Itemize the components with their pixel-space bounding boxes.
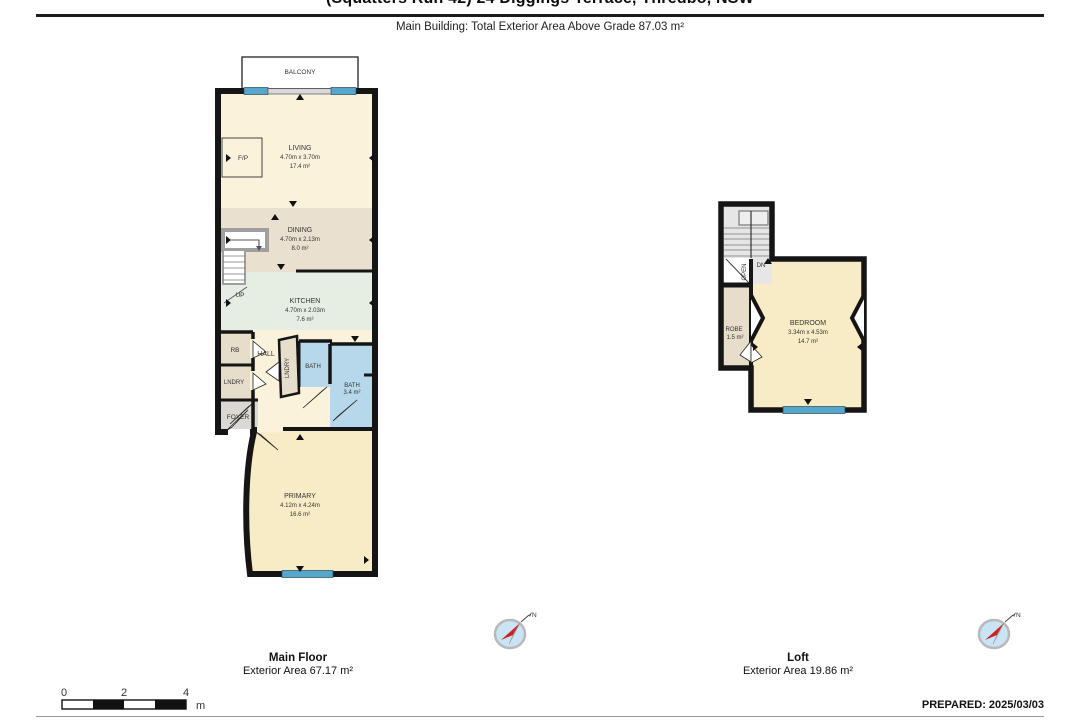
dn-label: DN (757, 263, 766, 269)
header-divider (36, 14, 1044, 17)
dining-label: DINING (288, 227, 313, 234)
primary-label: PRIMARY (284, 493, 316, 500)
robe-label: ROBE (725, 327, 742, 333)
open-label: OPEN (742, 263, 748, 280)
scale-tick-2: 2 (121, 687, 127, 699)
bedroom-label: BEDROOM (790, 320, 826, 327)
scale-unit: m (196, 700, 205, 712)
compass-main: N (488, 608, 538, 653)
balcony-slider-door (268, 89, 331, 95)
living-window-left (244, 88, 268, 95)
kitchen-label: KITCHEN (290, 298, 321, 305)
bath-label: BATH (344, 383, 360, 389)
up-label: UP (235, 292, 244, 299)
living-dims: 4.70m x 3.70m (280, 155, 320, 161)
page-title: (Squatters Run 42) 24 Diggings Terrace, … (0, 0, 1080, 8)
kitchen-dims: 4.70m x 2.03m (285, 308, 325, 314)
scale-tick-0: 0 (61, 687, 67, 699)
main-floor-caption: Main Floor Exterior Area 67.17 m² (158, 652, 438, 678)
bedroom-area: 14.7 m² (798, 339, 818, 345)
prepared-date: PREPARED: 2025/03/03 (922, 699, 1044, 711)
bath-area: 3.4 m² (343, 390, 360, 396)
loft-area: Exterior Area 19.86 m² (743, 665, 853, 677)
primary-area: 16.6 m² (290, 512, 310, 518)
primary-bedroom (245, 430, 375, 574)
loft-plan: BEDROOM 3.34m x 4.53m 14.7 m² ROBE 1.5 m… (700, 190, 890, 430)
living-area: 17.4 m² (290, 164, 310, 170)
footer-divider (36, 716, 1044, 717)
foyer-label: FOYER (227, 414, 250, 421)
floorplan-page: (Squatters Run 42) 24 Diggings Terrace, … (0, 0, 1080, 720)
laundry-label: LNDRY (224, 380, 244, 386)
bath-small-label: BATH (305, 364, 321, 370)
living-label: LIVING (289, 145, 312, 152)
balcony-label: BALCONY (284, 69, 316, 76)
robe-area: 1.5 m² (726, 335, 743, 341)
rb-label: RB (230, 347, 239, 354)
scale-bar: 0 2 4 m (50, 685, 220, 715)
balcony: BALCONY (242, 57, 358, 91)
total-area-subtitle: Main Building: Total Exterior Area Above… (0, 21, 1080, 33)
compass-loft: N (972, 608, 1022, 653)
laundry-closet-label: LNDRY (285, 358, 291, 378)
main-floor-area: Exterior Area 67.17 m² (243, 665, 353, 677)
north-label: N (1016, 612, 1021, 619)
bedroom-window (783, 407, 845, 414)
fireplace-label: F/P (238, 155, 248, 162)
dining-dims: 4.70m x 2.13m (280, 237, 320, 243)
main-floor-name: Main Floor (158, 652, 438, 665)
loft-caption: Loft Exterior Area 19.86 m² (658, 652, 938, 678)
main-floor-plan: BALCONY F/P (200, 40, 400, 600)
loft-name: Loft (658, 652, 938, 665)
bedroom-dims: 3.34m x 4.53m (788, 330, 828, 336)
kitchen-area: 7.6 m² (296, 317, 313, 323)
dining-area: 8.0 m² (291, 246, 308, 252)
hall-label: HALL (257, 351, 275, 358)
primary-window (282, 571, 333, 578)
north-label: N (532, 612, 537, 619)
loft-room-fills (721, 206, 866, 410)
living-window-right (331, 88, 356, 95)
primary-dims: 4.12m x 4.24m (280, 503, 320, 509)
scale-tick-4: 4 (183, 687, 189, 699)
